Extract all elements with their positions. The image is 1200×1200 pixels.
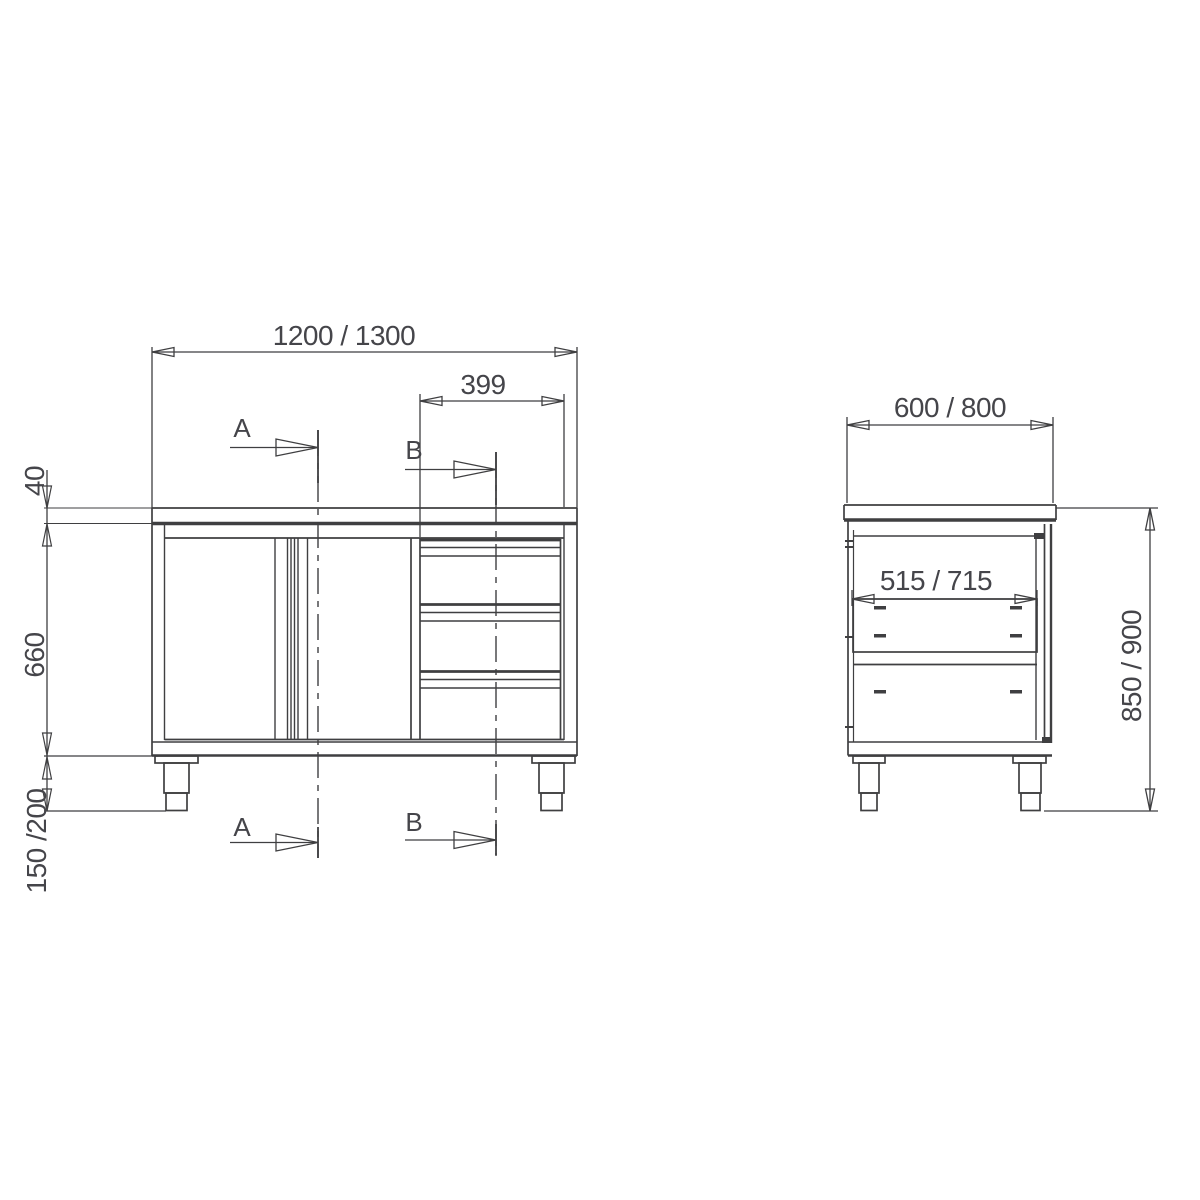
drawer-unit-width-label: 399 bbox=[460, 369, 505, 400]
side-legs bbox=[853, 756, 1046, 811]
runner-mount-dash bbox=[874, 634, 886, 638]
drawing-line bbox=[155, 756, 198, 763]
depth-label: 600 / 800 bbox=[894, 392, 1006, 423]
drawing-line bbox=[859, 763, 879, 793]
dimension-depth: 600 / 800 bbox=[847, 392, 1053, 503]
dimension-drawer-unit-width: 399 bbox=[420, 369, 564, 537]
drawing-line bbox=[532, 756, 575, 763]
overall-height-label: 850 / 900 bbox=[1116, 610, 1147, 722]
worktop-thickness-label: 40 bbox=[19, 466, 50, 496]
overall-width-label: 1200 / 1300 bbox=[273, 320, 415, 351]
door-corner-block bbox=[1034, 533, 1044, 539]
inner-depth-label: 515 / 715 bbox=[880, 565, 992, 596]
cabinet-dimension-drawing: 1200 / 1300 399 40 660 150 /200 bbox=[0, 0, 1200, 1200]
drawing-line bbox=[164, 763, 189, 793]
drawing-line bbox=[166, 793, 187, 811]
front-body-outline bbox=[152, 508, 577, 756]
front-legs bbox=[155, 756, 575, 811]
front-sliding-doors bbox=[275, 538, 411, 740]
drawing-line bbox=[539, 763, 564, 793]
section-b-top-label: B bbox=[405, 435, 422, 465]
runner-mount-dash bbox=[1010, 634, 1022, 638]
drawing-line bbox=[853, 756, 885, 763]
front-drawer-stack bbox=[420, 538, 561, 740]
side-drawer-runner-band bbox=[853, 599, 1037, 694]
front-view: 1200 / 1300 399 40 660 150 /200 bbox=[19, 320, 577, 894]
drawing-line bbox=[541, 793, 562, 811]
leg-height-label: 150 /200 bbox=[21, 789, 52, 894]
dimension-overall-width: 1200 / 1300 bbox=[152, 320, 577, 508]
runner-mount-dash bbox=[874, 606, 886, 610]
side-body-outline bbox=[845, 520, 1052, 756]
side-worktop bbox=[844, 505, 1056, 520]
drawing-line bbox=[1019, 763, 1041, 793]
door-corner-block bbox=[1042, 737, 1052, 743]
runner-mount-dash bbox=[1010, 606, 1022, 610]
drawing-line bbox=[1013, 756, 1046, 763]
drawing-line bbox=[1021, 793, 1040, 811]
body-height-label: 660 bbox=[19, 632, 50, 677]
drawing-line bbox=[861, 793, 877, 811]
runner-mount-dash bbox=[874, 690, 886, 694]
section-line-a: A A bbox=[230, 413, 318, 858]
runner-mount-dash bbox=[1010, 690, 1022, 694]
section-line-b: B B bbox=[405, 435, 496, 856]
dimension-left-heights: 40 660 150 /200 bbox=[19, 466, 166, 894]
front-worktop bbox=[152, 508, 577, 524]
section-a-bottom-label: A bbox=[233, 812, 251, 842]
section-b-bottom-label: B bbox=[405, 807, 422, 837]
side-view: 600 / 800 515 / 715 850 / 900 bbox=[844, 392, 1158, 811]
dimension-overall-height: 850 / 900 bbox=[1044, 508, 1158, 811]
section-a-top-label: A bbox=[233, 413, 251, 443]
technical-drawing-page: 1200 / 1300 399 40 660 150 /200 bbox=[0, 0, 1200, 1200]
